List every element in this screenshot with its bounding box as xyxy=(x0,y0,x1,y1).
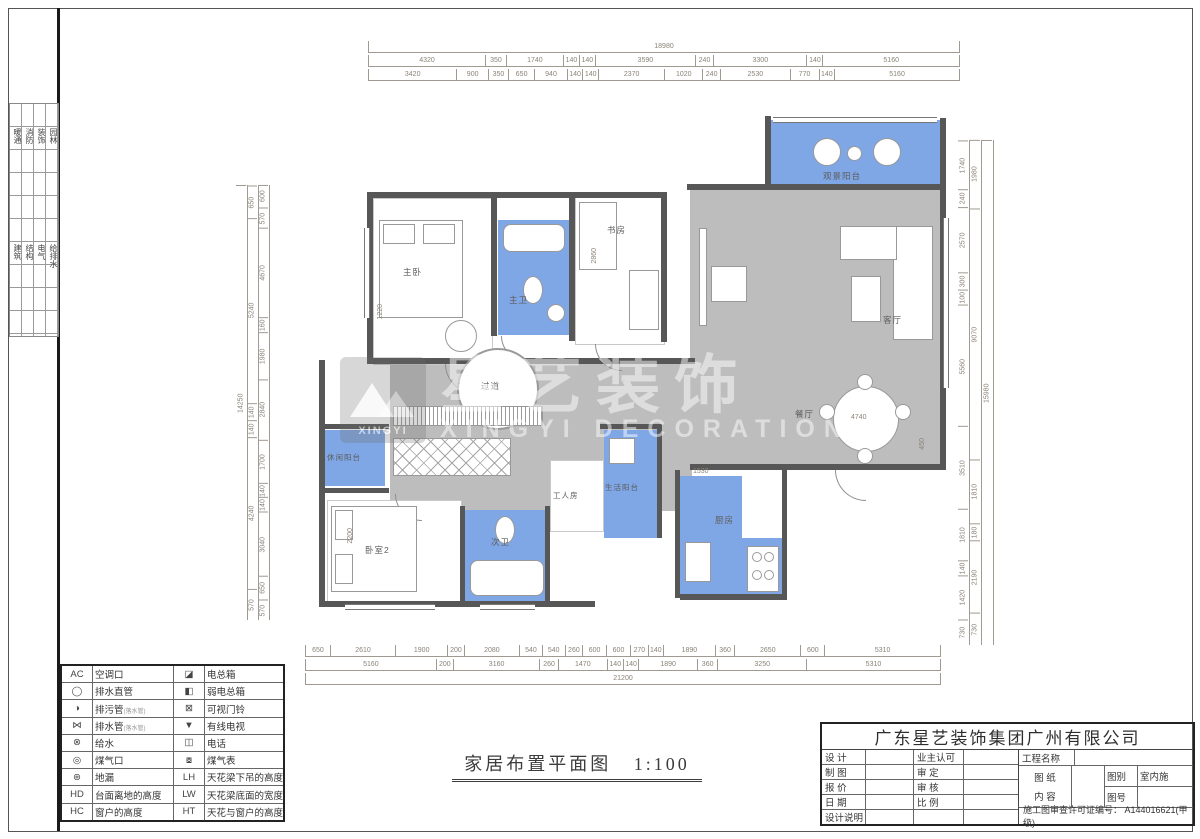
room-label-view-balcony: 观景阳台 xyxy=(823,170,861,182)
dim-right-outer: 1980907018101802190730 xyxy=(970,140,982,645)
legend-row: ◎ 煤气口 ⧇ 煤气表 xyxy=(61,752,284,769)
wall xyxy=(319,424,389,429)
wall xyxy=(319,488,389,493)
permit-number: 施工图审查许可证编号： A144016621(甲级) xyxy=(1019,808,1193,824)
desk-study xyxy=(629,270,659,330)
dining-chair xyxy=(895,404,911,420)
wall xyxy=(657,426,662,538)
window xyxy=(480,604,535,610)
tab-hvac: 暖通 xyxy=(11,128,22,144)
legend-symbol: ⊗ xyxy=(61,734,93,751)
legend-row: ◑ 排污管(落水管) ⊠ 可视门铃 xyxy=(61,700,284,717)
window xyxy=(943,218,949,388)
drawing-scale: 1:100 xyxy=(634,754,690,774)
room-label-service-balcony: 生活阳台 xyxy=(605,482,639,493)
legend-row: ⊗ 给水 ◫ 电话 xyxy=(61,734,284,751)
room-label-bedroom2: 卧室2 xyxy=(365,544,390,556)
dining-chair xyxy=(819,404,835,420)
project-name-label: 工程名称 xyxy=(1019,750,1075,765)
legend-symbol: ▼ xyxy=(174,717,205,734)
tea-table xyxy=(711,266,747,302)
tab-decor: 装饰 xyxy=(35,128,46,144)
tb-value xyxy=(964,750,1018,764)
legend-row: ◯ 排水直管 ◧ 弱电总箱 xyxy=(61,683,284,700)
wall xyxy=(367,192,667,198)
door-arc xyxy=(835,470,866,501)
drawing-title: 家居布置平面图 1:100 xyxy=(452,750,702,782)
dim-bottom-total: 21200 xyxy=(305,672,941,685)
wall xyxy=(675,470,680,598)
legend-label: 天花梁下吊的高度 xyxy=(205,769,285,786)
tb-value xyxy=(964,810,1018,824)
dim-right-total: 15980 xyxy=(982,140,994,645)
legend-label: 可视门铃 xyxy=(205,700,285,717)
burner xyxy=(764,570,774,580)
legend-symbol: HD xyxy=(61,786,93,803)
legend-label: 台面离地的高度 xyxy=(93,786,174,803)
room-label-study: 书房 xyxy=(607,224,626,236)
bed-study xyxy=(579,202,617,270)
dining-chair xyxy=(857,374,873,390)
wall xyxy=(545,506,550,606)
wall xyxy=(661,192,667,342)
tb-label: 审 核 xyxy=(914,780,964,794)
legend-symbol: ⧇ xyxy=(174,752,205,769)
dim-left-inner: 6005704670160198028401700140140304065057… xyxy=(258,185,270,620)
sheet-content-label: 图 纸 内 容 xyxy=(1019,766,1072,807)
legend-row: AC 空调口 ◪ 电总箱 xyxy=(61,665,284,683)
basin-master xyxy=(547,304,565,322)
wall xyxy=(687,184,945,190)
tab-landscape: 园林 xyxy=(47,128,58,144)
tb-value xyxy=(964,765,1018,779)
room-label-dining: 餐厅 xyxy=(795,408,814,420)
wardrobe-row xyxy=(393,438,511,476)
tab-struct: 结构 xyxy=(23,244,34,260)
shelf-hatch xyxy=(393,406,543,426)
bathtub-master xyxy=(503,224,565,252)
interior-dim: 4740 xyxy=(851,414,867,421)
tb-value xyxy=(866,765,914,779)
project-name-value xyxy=(1075,750,1193,765)
room-label-second-bath: 次卫 xyxy=(491,536,510,548)
drawing-sheet: 暖通 消防 装饰 园林 建筑 结构 电气 给排水 18980 432035017… xyxy=(0,0,1200,839)
legend-row: ⊛ 地漏 LH 天花梁下吊的高度 xyxy=(61,769,284,786)
legend-label: 排水直管 xyxy=(93,683,174,700)
interior-dim: 2860 xyxy=(591,248,598,264)
window xyxy=(773,117,937,123)
wall xyxy=(367,358,695,364)
legend-label: 煤气表 xyxy=(205,752,285,769)
kitchen-sink xyxy=(685,542,711,582)
interior-dim: 1220 xyxy=(377,304,384,320)
tb-label: 制 图 xyxy=(822,765,866,779)
room-label-foyer: 过道 xyxy=(481,380,500,392)
legend-label: 天花梁底面的宽度 xyxy=(205,786,285,803)
dim-top-total: 18980 xyxy=(368,40,960,53)
tb-value xyxy=(866,780,914,794)
legend-row: HD 台面离地的高度 LW 天花梁底面的宽度 xyxy=(61,786,284,803)
bathtub-second xyxy=(470,560,544,596)
balcony-table xyxy=(847,146,862,161)
dim-top-row3: 3420900350650940140140237010202402530770… xyxy=(368,68,960,81)
legend-symbol: ⋈ xyxy=(61,717,93,734)
room-label-kitchen: 厨房 xyxy=(715,514,734,526)
legend-label: 给水 xyxy=(93,734,174,751)
tab-fire: 消防 xyxy=(23,128,34,144)
legend-label: 窗户的高度 xyxy=(93,803,174,821)
sheet-label: 图 纸 xyxy=(1034,770,1056,784)
legend-symbol: ◫ xyxy=(174,734,205,751)
window xyxy=(364,228,370,318)
legend-symbol: ⊠ xyxy=(174,700,205,717)
wall xyxy=(569,196,575,341)
room-label-master: 主卧 xyxy=(403,266,422,278)
wall xyxy=(460,506,465,606)
lounge-chair xyxy=(813,138,841,166)
legend-symbol: ◎ xyxy=(61,752,93,769)
pillow xyxy=(383,224,415,244)
tb-value xyxy=(866,810,914,824)
legend-symbol: AC xyxy=(61,665,93,683)
legend-symbol: HT xyxy=(174,803,205,821)
dim-bottom-row2: 516020031602601470140140189036032505310 xyxy=(305,658,941,671)
sofa-side xyxy=(840,226,897,260)
tab-arch: 建筑 xyxy=(11,244,22,260)
content-label: 内 容 xyxy=(1034,789,1056,803)
legend-label: 天花与窗户的高度 xyxy=(205,803,285,821)
legend-symbol: HC xyxy=(61,803,93,821)
wall xyxy=(319,360,325,606)
pillow xyxy=(335,554,353,584)
sheet-content-value xyxy=(1072,766,1105,807)
legend-symbol: ◑ xyxy=(61,700,93,717)
legend-row: ⋈ 排水管(落水管) ▼ 有线电视 xyxy=(61,717,284,734)
wall xyxy=(491,196,497,336)
tb-value xyxy=(964,780,1018,794)
tb-label: 报 价 xyxy=(822,780,866,794)
floor-plan: 主卧 主卫 书房 过道 客厅 餐厅 观景阳台 休闲阳台 卧室2 次卫 工人房 生… xyxy=(295,108,965,643)
room-label-master-bath: 主卫 xyxy=(509,294,528,306)
tb-label: 设计说明 xyxy=(822,810,866,824)
titleblock-grid: 设 计业主认可 制 图审 定 报 价审 核 日 期比 例 设计说明 xyxy=(822,750,1019,824)
discipline-tab-strip: 暖通 消防 装饰 园林 建筑 结构 电气 给排水 xyxy=(9,103,59,337)
drawing-type-value: 室内施 xyxy=(1138,766,1193,786)
wall xyxy=(680,594,787,600)
dim-bottom-row1: 6502610190020020805405402606006002701401… xyxy=(305,644,941,657)
tb-value xyxy=(964,795,1018,809)
legend-symbol: ⊛ xyxy=(61,769,93,786)
wall xyxy=(600,424,662,429)
legend-label: 电话 xyxy=(205,734,285,751)
tb-value xyxy=(866,795,914,809)
legend-label: 有线电视 xyxy=(205,717,285,734)
lounge-chair xyxy=(873,138,901,166)
legend-symbol: LH xyxy=(174,769,205,786)
tb-label: 日 期 xyxy=(822,795,866,809)
burner xyxy=(752,552,762,562)
tb-label: 设 计 xyxy=(822,750,866,764)
tv-cabinet xyxy=(699,228,707,326)
legend-symbol: LW xyxy=(174,786,205,803)
wall xyxy=(782,470,787,598)
legend-label: 地漏 xyxy=(93,769,174,786)
titleblock-right: 工程名称 图 纸 内 容 图别室内施 图号 施工图审查许可证编号： A14401… xyxy=(1019,750,1193,824)
interior-dim: 1530 xyxy=(693,468,709,475)
legend-label: 空调口 xyxy=(93,665,174,683)
legend-label: 排水管(落水管) xyxy=(93,717,174,734)
tb-label: 审 定 xyxy=(914,765,964,779)
legend-row: HC 窗户的高度 HT 天花与窗户的高度 xyxy=(61,803,284,821)
legend-label: 电总箱 xyxy=(205,665,285,683)
room-label-living: 客厅 xyxy=(883,314,902,326)
title-block: 广东星艺装饰集团广州有限公司 设 计业主认可 制 图审 定 报 价审 核 日 期… xyxy=(820,722,1195,826)
interior-dim: 450 xyxy=(919,438,926,450)
dining-chair xyxy=(857,448,873,464)
coffee-table xyxy=(851,276,881,322)
legend-table: AC 空调口 ◪ 电总箱 ◯ 排水直管 ◧ 弱电总箱 ◑ 排污管(落水管) ⊠ … xyxy=(60,664,285,822)
drawing-type-label: 图别 xyxy=(1105,766,1138,786)
room-label-worker: 工人房 xyxy=(553,490,579,501)
legend-label: 排污管(落水管) xyxy=(93,700,174,717)
wall xyxy=(765,116,771,188)
burner xyxy=(752,570,762,580)
wall xyxy=(690,464,945,470)
tab-electric: 电气 xyxy=(35,244,46,260)
company-name: 广东星艺装饰集团广州有限公司 xyxy=(822,724,1193,750)
stove xyxy=(747,546,779,592)
washer xyxy=(609,438,635,464)
legend-symbol: ◧ xyxy=(174,683,205,700)
interior-dim: 2200 xyxy=(347,528,354,544)
legend-symbol: ◯ xyxy=(61,683,93,700)
legend-label: 煤气口 xyxy=(93,752,174,769)
legend-symbol: ◪ xyxy=(174,665,205,683)
legend-label: 弱电总箱 xyxy=(205,683,285,700)
window xyxy=(345,604,435,610)
rug-round xyxy=(445,320,477,352)
tab-plumbing: 给排水 xyxy=(47,244,58,268)
dim-top-row2: 43203501740140140359024033001405160 xyxy=(368,54,960,67)
pillow xyxy=(423,224,455,244)
burner xyxy=(764,552,774,562)
drawing-title-text: 家居布置平面图 xyxy=(464,754,611,774)
tb-label: 业主认可 xyxy=(914,750,964,764)
room-label-leisure-balcony: 休闲阳台 xyxy=(327,452,361,463)
tb-label: 比 例 xyxy=(914,795,964,809)
tb-label xyxy=(914,810,964,824)
tb-value xyxy=(866,750,914,764)
